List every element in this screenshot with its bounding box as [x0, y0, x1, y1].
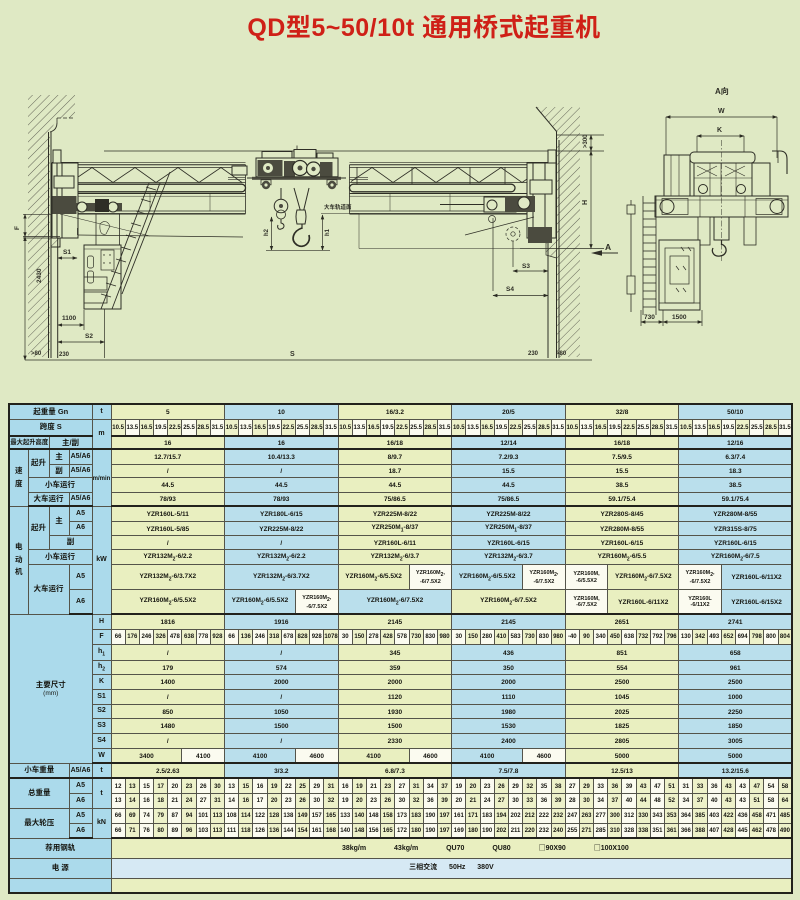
- svg-text:2430: 2430: [33, 268, 43, 283]
- svg-text:K: K: [717, 125, 722, 135]
- svg-text:A向: A向: [715, 86, 729, 97]
- svg-text:>80: >80: [556, 348, 567, 357]
- svg-text:A: A: [605, 241, 611, 253]
- svg-text:>300: >300: [580, 134, 589, 148]
- svg-text:>80: >80: [31, 348, 42, 357]
- svg-text:W: W: [718, 106, 725, 116]
- svg-text:S: S: [290, 349, 295, 359]
- svg-text:h1: h1: [322, 228, 331, 236]
- svg-text:1500: 1500: [672, 311, 687, 321]
- svg-text:230: 230: [59, 349, 70, 358]
- svg-text:F: F: [11, 226, 21, 230]
- svg-text:大车轨道面: 大车轨道面: [324, 203, 352, 211]
- svg-text:1100: 1100: [62, 312, 76, 322]
- svg-text:H: H: [580, 200, 590, 205]
- svg-text:h2: h2: [261, 228, 270, 236]
- svg-text:S2: S2: [85, 330, 93, 340]
- svg-text:730: 730: [644, 311, 655, 321]
- svg-text:S1: S1: [63, 246, 71, 256]
- svg-text:230: 230: [528, 348, 539, 357]
- svg-text:S4: S4: [506, 283, 514, 293]
- svg-text:S3: S3: [522, 260, 530, 270]
